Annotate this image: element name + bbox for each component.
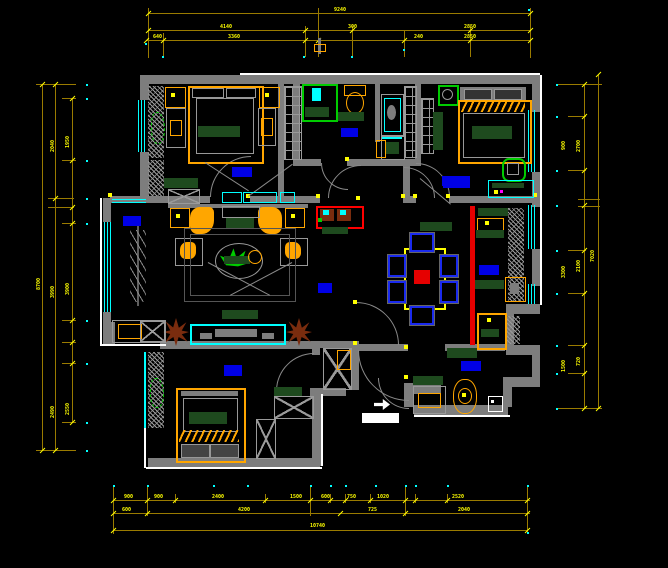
wardrobe-icon [256, 419, 276, 459]
bed-drawer [210, 444, 239, 458]
rug-icon [224, 365, 242, 376]
wardrobe-icon [274, 396, 314, 419]
headboard [181, 391, 238, 396]
plant-icon [150, 378, 164, 408]
bed-drawer [181, 444, 210, 458]
cad-drawing-canvas[interactable]: 9240414030028506403360240285090090024001… [0, 0, 668, 568]
wardrobe-shelf [274, 387, 302, 396]
blanket-zigzag [179, 430, 239, 442]
bedroom-bottom [0, 0, 668, 568]
bed-cushion [189, 412, 227, 424]
